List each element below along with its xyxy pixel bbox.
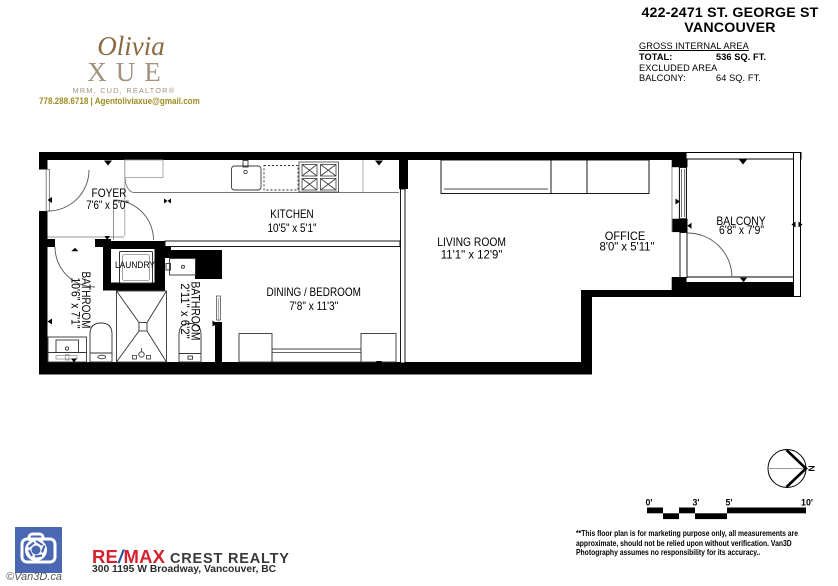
svg-text:7'6" x 5'0": 7'6" x 5'0" <box>86 198 129 212</box>
svg-text:11'1" x 12'9": 11'1" x 12'9" <box>441 248 503 262</box>
svg-text:0': 0' <box>646 498 653 508</box>
svg-text:N: N <box>807 465 817 471</box>
svg-text:6'8" x 7'9": 6'8" x 7'9" <box>719 223 764 237</box>
svg-text:8'0" x 5'11": 8'0" x 5'11" <box>600 239 655 253</box>
svg-text:7'8" x 11'3": 7'8" x 11'3" <box>289 299 338 313</box>
svg-text:3': 3' <box>693 498 700 508</box>
svg-text:KITCHEN: KITCHEN <box>270 207 313 221</box>
svg-text:2'11" x 6'2": 2'11" x 6'2" <box>178 283 192 338</box>
svg-text:10': 10' <box>801 498 813 508</box>
svg-text:DINING / BEDROOM: DINING / BEDROOM <box>266 285 361 299</box>
svg-text:10'6" x 7'1": 10'6" x 7'1" <box>69 278 83 329</box>
svg-text:5': 5' <box>726 498 733 508</box>
svg-text:10'5" x 5'1": 10'5" x 5'1" <box>268 221 317 235</box>
svg-text:LAUNDRY: LAUNDRY <box>115 260 156 271</box>
